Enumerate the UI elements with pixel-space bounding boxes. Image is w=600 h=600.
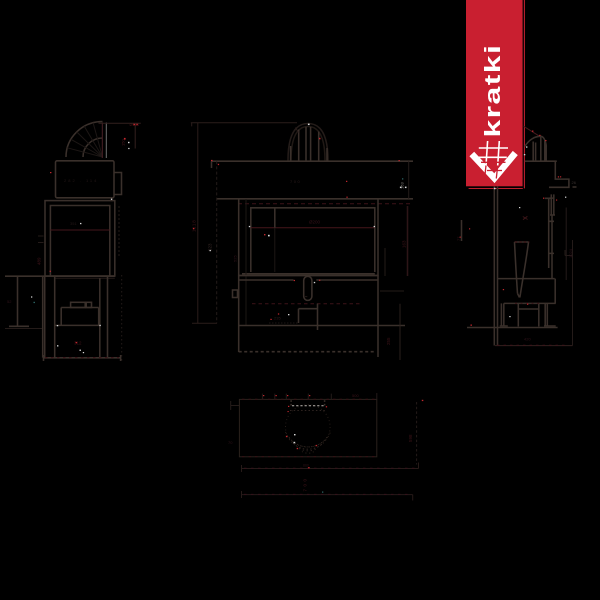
svg-text:282 . 114: 282 . 114	[64, 178, 98, 183]
svg-text:351: 351	[70, 221, 77, 226]
svg-text:523: 523	[208, 243, 213, 251]
svg-text:420: 420	[524, 337, 531, 342]
svg-text:700: 700	[290, 179, 301, 184]
svg-text:235: 235	[274, 316, 281, 321]
svg-text:1118: 1118	[191, 219, 196, 232]
svg-text:489: 489	[37, 257, 42, 265]
svg-text:Ø200: Ø200	[309, 220, 321, 225]
svg-text:150: 150	[121, 139, 126, 146]
svg-text:500: 500	[352, 393, 359, 398]
svg-text:70: 70	[228, 440, 233, 445]
svg-text:700: 700	[303, 476, 308, 491]
svg-text:312: 312	[74, 341, 82, 346]
svg-text:860: 860	[303, 464, 309, 468]
svg-text:26: 26	[572, 180, 577, 185]
svg-text:1024: 1024	[568, 248, 573, 258]
svg-text:598: 598	[408, 434, 413, 442]
svg-text:52: 52	[7, 299, 12, 304]
svg-text:77: 77	[456, 236, 461, 241]
svg-text:kratki: kratki	[479, 44, 504, 138]
svg-text:525: 525	[233, 255, 238, 262]
svg-text:163: 163	[402, 240, 407, 248]
svg-text:255: 255	[386, 337, 391, 345]
